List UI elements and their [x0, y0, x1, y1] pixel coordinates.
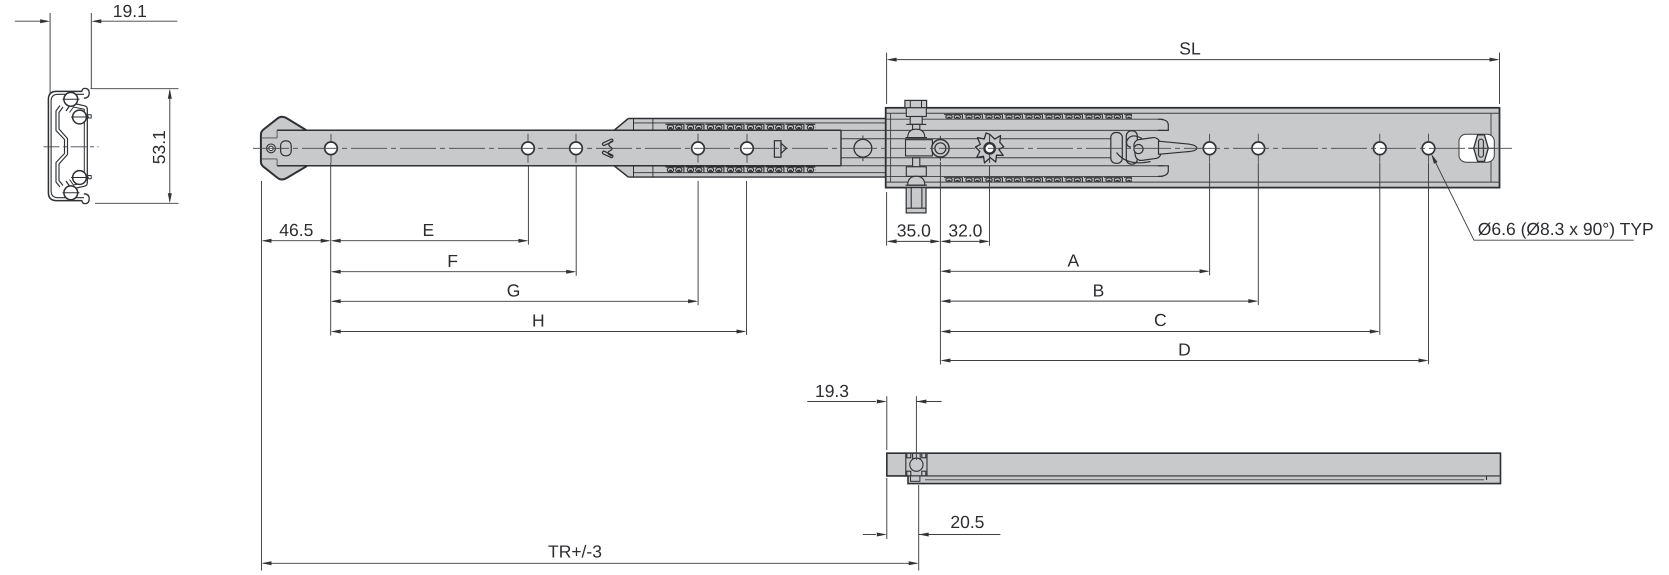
- svg-text:E: E: [423, 220, 435, 240]
- svg-text:20.5: 20.5: [950, 512, 984, 532]
- svg-text:32.0: 32.0: [948, 221, 982, 241]
- svg-text:D: D: [1178, 340, 1191, 360]
- svg-text:35.0: 35.0: [897, 221, 931, 241]
- svg-text:Ø6.6 (Ø8.3 x 90°) TYP: Ø6.6 (Ø8.3 x 90°) TYP: [1478, 219, 1654, 239]
- svg-text:G: G: [507, 281, 521, 301]
- svg-text:SL: SL: [1179, 39, 1201, 59]
- svg-text:TR+/-3: TR+/-3: [548, 542, 602, 562]
- svg-text:46.5: 46.5: [279, 220, 313, 240]
- svg-text:19.1: 19.1: [113, 1, 147, 21]
- svg-text:C: C: [1154, 310, 1167, 330]
- svg-text:B: B: [1093, 280, 1105, 300]
- svg-text:H: H: [532, 310, 545, 330]
- svg-text:19.3: 19.3: [815, 381, 849, 401]
- svg-text:A: A: [1068, 251, 1080, 271]
- svg-text:53.1: 53.1: [149, 130, 169, 164]
- svg-text:F: F: [447, 251, 458, 271]
